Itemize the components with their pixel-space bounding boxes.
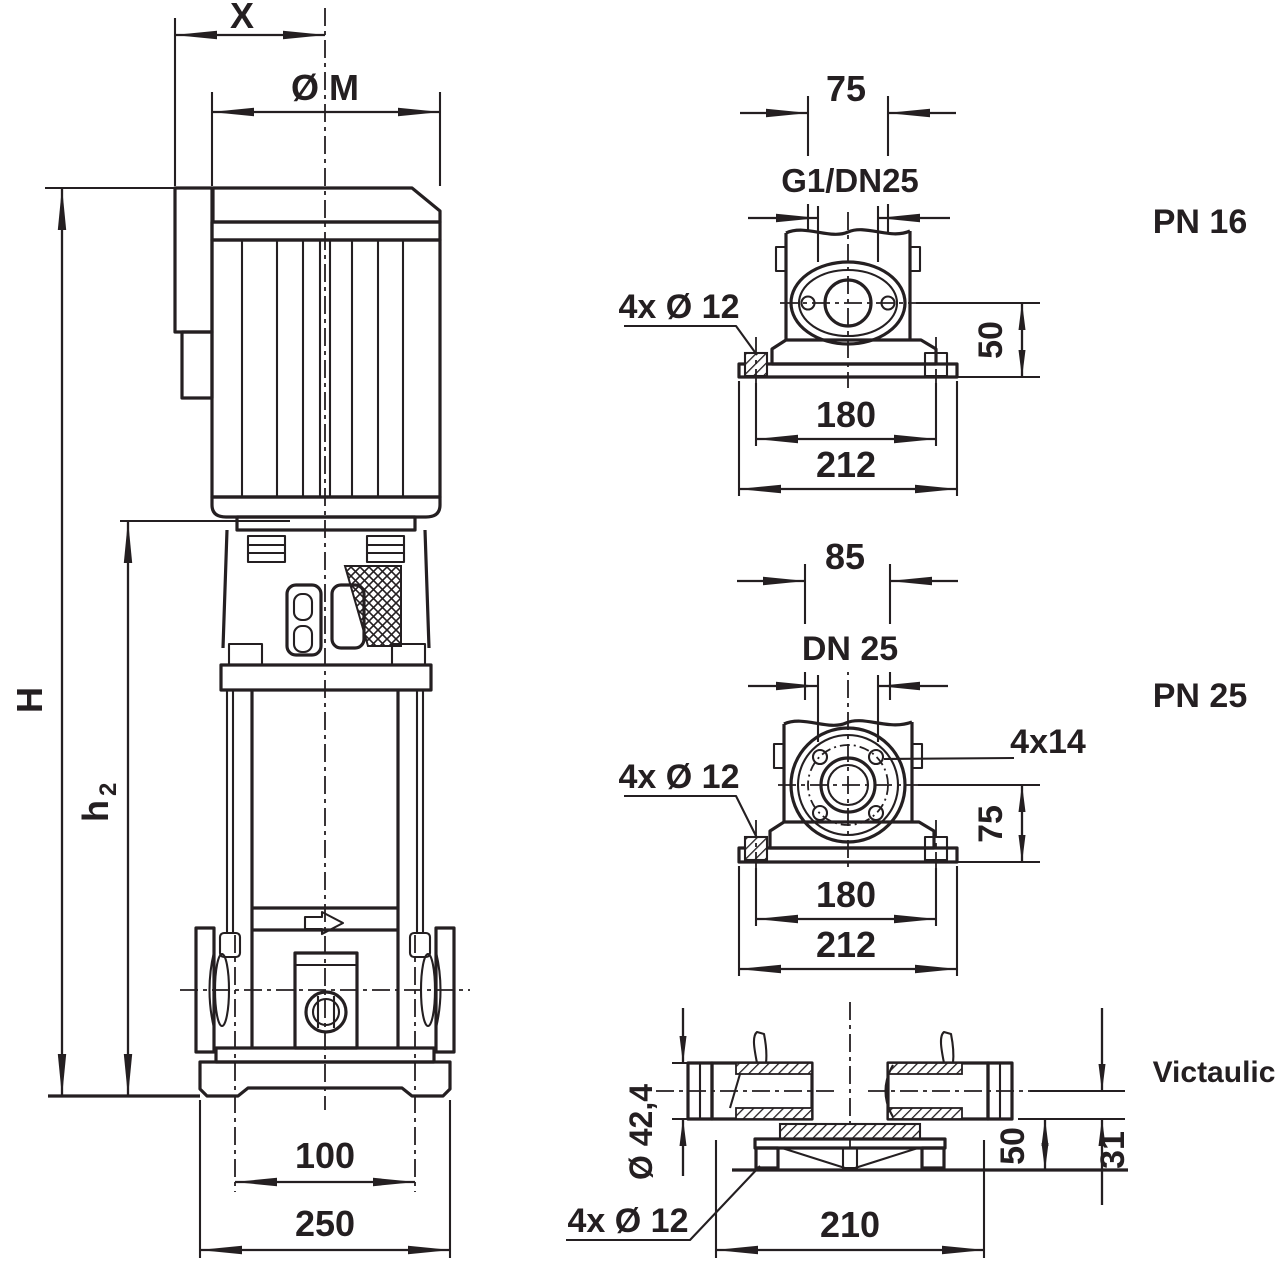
pn25-flange-bolt-label: 4x14: [1010, 723, 1086, 761]
technical-drawing-page: X Ø M: [0, 0, 1280, 1262]
pn16-connection-label: G1/DN25: [781, 162, 919, 199]
pump-base: [48, 1048, 450, 1096]
lantern-section: [221, 517, 431, 690]
terminal-box: [175, 188, 212, 398]
dim-h2-label: h: [75, 800, 116, 822]
pn16-dim-212-label: 212: [816, 444, 876, 485]
victaulic-dim-50-label: 50: [994, 1127, 1032, 1165]
victaulic-view: Ø 42,4 31 50 4x Ø 12 210 Victaulic: [566, 1002, 1275, 1258]
pn25-bolt-label: 4x Ø 12: [619, 758, 740, 796]
dim-h-label: H: [9, 687, 50, 713]
dimension-h: H: [9, 188, 176, 1096]
pn25-title: PN 25: [1153, 677, 1248, 715]
dimension-50-victaulic: 50: [994, 1119, 1045, 1170]
pn16-dim-50-label: 50: [972, 321, 1010, 359]
pn16-port-view: 75 G1/DN25 4x Ø 12 50: [619, 68, 1248, 496]
pump-dimensional-drawing: X Ø M: [0, 0, 1280, 1262]
victaulic-dim-31-label: 31: [1094, 1131, 1132, 1169]
dimension-100: 100: [235, 1135, 415, 1182]
dim-motor-diameter-label: Ø M: [291, 67, 359, 108]
pn16-title: PN 16: [1153, 203, 1248, 241]
dimension-31: 31: [1018, 1008, 1132, 1205]
pn25-connection-label: DN 25: [802, 630, 898, 668]
pump-front-view: X Ø M: [9, 0, 470, 1258]
pn16-dim-180-label: 180: [816, 394, 876, 435]
pn16-dim-75-label: 75: [826, 68, 866, 109]
dim-250-label: 250: [295, 1203, 355, 1244]
coupling-guard-grille: [345, 566, 401, 646]
motor: [212, 188, 440, 517]
victaulic-right-stub: [868, 1032, 1030, 1119]
pn25-dim-75-label: 75: [972, 805, 1010, 843]
pn25-dim-212-label: 212: [816, 924, 876, 965]
victaulic-dim-210-label: 210: [820, 1204, 880, 1245]
dim-h2-subscript: 2: [95, 783, 122, 796]
dimension-h2: h 2: [75, 521, 290, 1096]
dimension-pipe-od: Ø 42,4: [623, 1008, 702, 1180]
victaulic-base: [732, 1124, 1128, 1170]
pn25-dim-180-label: 180: [816, 874, 876, 915]
dimension-motor-diameter: Ø M: [212, 67, 440, 186]
victaulic-pipe-od-label: Ø 42,4: [623, 1084, 659, 1180]
victaulic-title: Victaulic: [1153, 1056, 1276, 1089]
dim-x-label: X: [230, 0, 254, 36]
dimension-250: 250: [200, 1100, 450, 1258]
pn16-bolt-label: 4x Ø 12: [619, 288, 740, 326]
dim-100-label: 100: [295, 1135, 355, 1176]
pn25-port-view: 85 DN 25 4x14 4x Ø 12: [619, 536, 1248, 976]
pn25-dim-85-label: 85: [825, 536, 865, 577]
victaulic-bolt-label: 4x Ø 12: [568, 1202, 689, 1240]
